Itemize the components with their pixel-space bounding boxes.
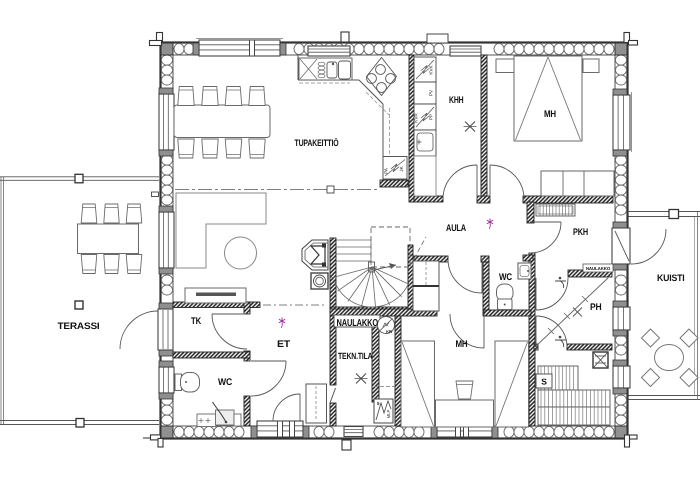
svg-text:KVK: KVK [429, 64, 434, 74]
svg-text:MLP: MLP [386, 409, 391, 418]
svg-text:ET: ET [277, 339, 290, 350]
svg-text:NAULAKKO: NAULAKKO [586, 266, 611, 271]
svg-text:MH: MH [544, 109, 556, 120]
svg-text:AULA: AULA [446, 223, 466, 234]
svg-text:KHH: KHH [449, 95, 464, 106]
svg-text:TK: TK [191, 316, 201, 327]
svg-text:KVR: KVR [414, 113, 419, 123]
svg-text:NAULAKKO: NAULAKKO [337, 318, 379, 329]
svg-text:TERASSI: TERASSI [58, 320, 100, 331]
svg-text:PKH: PKH [573, 227, 588, 238]
svg-text:PV: PV [429, 89, 434, 96]
svg-text:PH: PH [590, 302, 602, 313]
svg-text:WC: WC [499, 272, 512, 283]
svg-text:MH: MH [456, 339, 468, 350]
svg-text:TUPAKEITTIÖ: TUPAKEITTIÖ [295, 137, 339, 148]
svg-text:WC: WC [218, 377, 232, 388]
svg-text:TEKN.TILA: TEKN.TILA [338, 351, 373, 361]
svg-text:KPl: KPl [386, 330, 392, 334]
svg-text:JK: JK [399, 165, 404, 171]
svg-text:S: S [541, 377, 547, 387]
svg-text:KUISTI: KUISTI [657, 272, 685, 283]
svg-text:PA: PA [384, 167, 389, 174]
svg-text:PP: PP [429, 114, 434, 120]
